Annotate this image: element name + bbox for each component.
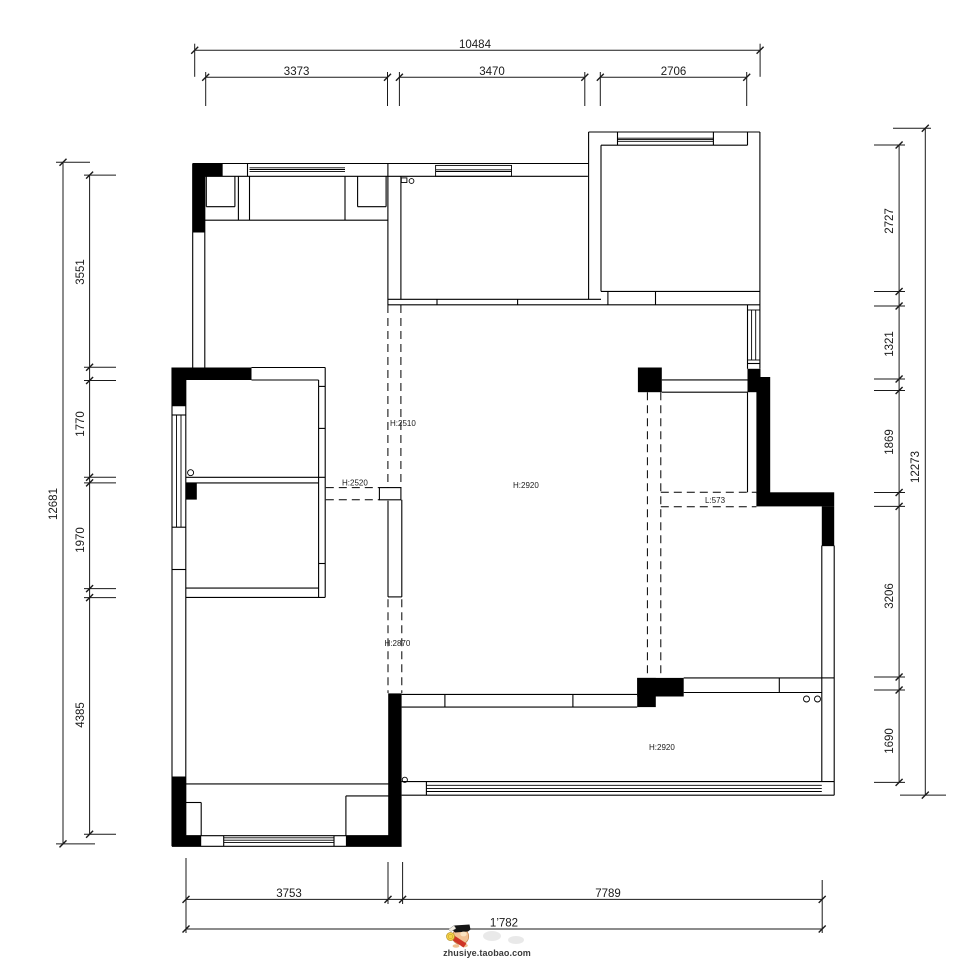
svg-text:12273: 12273 [910, 451, 922, 483]
svg-text:3470: 3470 [479, 66, 505, 78]
svg-text:1869: 1869 [884, 429, 896, 455]
svg-text:2727: 2727 [884, 208, 896, 234]
svg-text:H:2510: H:2510 [390, 419, 416, 428]
svg-text:3206: 3206 [884, 583, 896, 609]
svg-text:3551: 3551 [75, 259, 87, 285]
svg-text:zhusiye.taobao.com: zhusiye.taobao.com [443, 948, 531, 958]
svg-text:H:2520: H:2520 [342, 479, 368, 488]
svg-text:1690: 1690 [884, 728, 896, 754]
svg-text:H:2920: H:2920 [513, 481, 539, 490]
svg-text:1770: 1770 [75, 411, 87, 437]
svg-text:H:2920: H:2920 [649, 743, 675, 752]
svg-text:1’782: 1’782 [490, 918, 518, 930]
svg-text:2706: 2706 [661, 66, 687, 78]
svg-text:H:2870: H:2870 [385, 639, 411, 648]
svg-text:1970: 1970 [75, 527, 87, 553]
svg-text:3753: 3753 [276, 888, 302, 900]
svg-text:L:573: L:573 [705, 496, 726, 505]
svg-text:3373: 3373 [284, 66, 310, 78]
svg-text:10484: 10484 [459, 39, 492, 51]
svg-text:12681: 12681 [48, 488, 60, 520]
svg-text:1321: 1321 [884, 331, 896, 357]
svg-text:4385: 4385 [75, 702, 87, 728]
svg-text:7789: 7789 [595, 888, 621, 900]
